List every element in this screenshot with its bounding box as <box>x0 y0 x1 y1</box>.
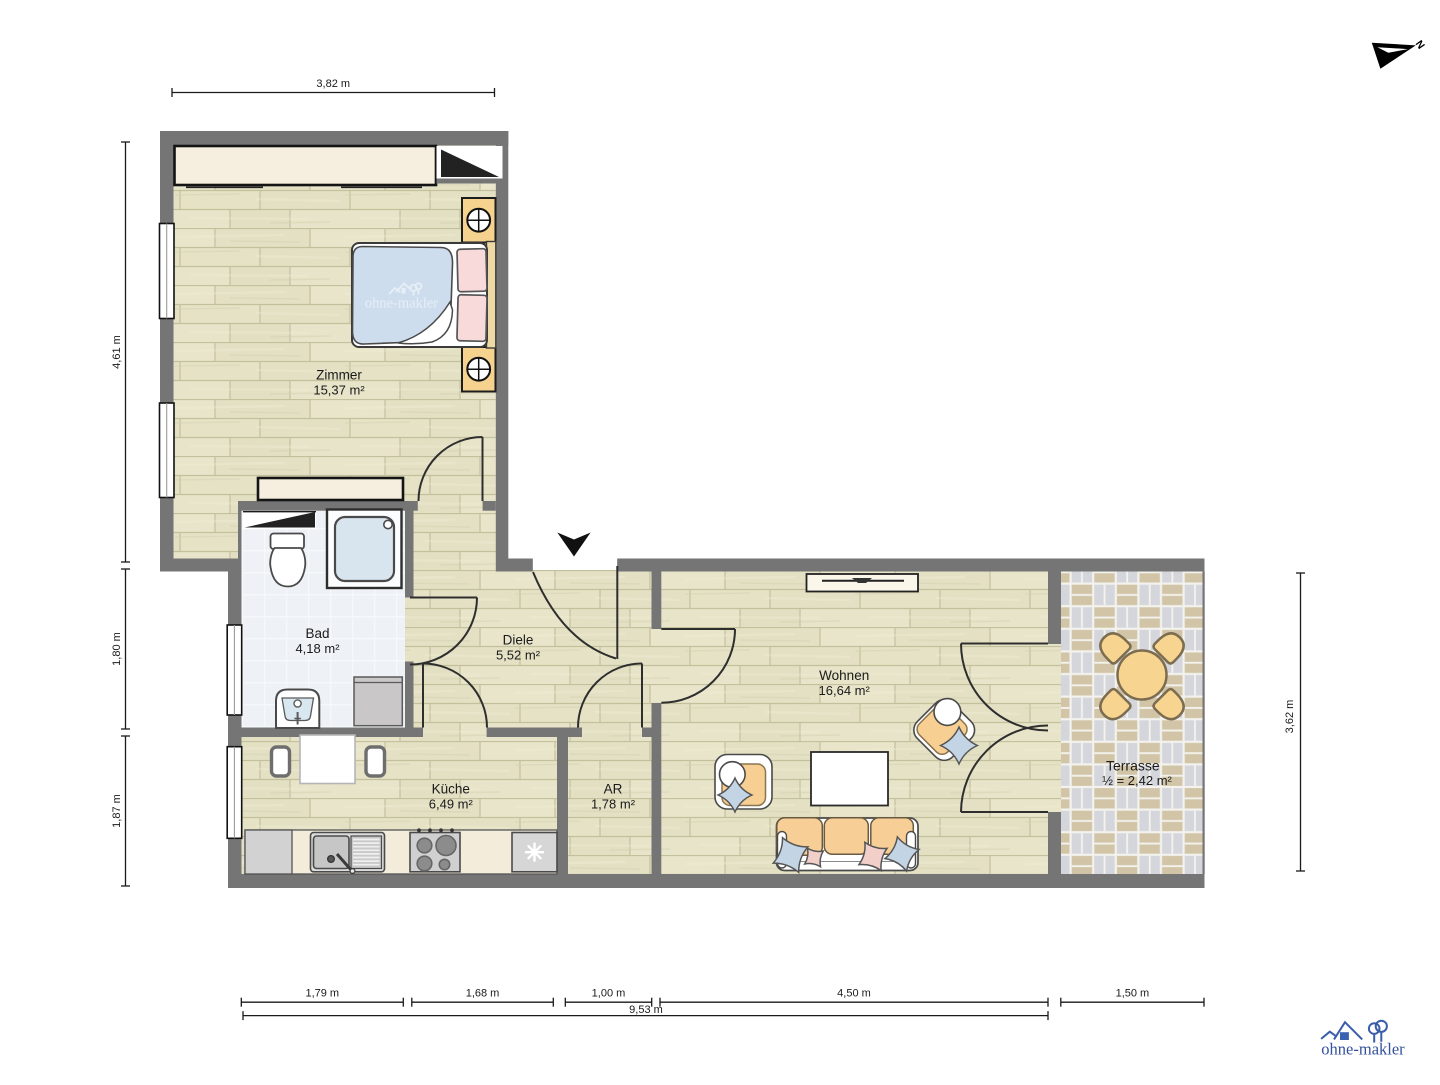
svg-text:1,87 m: 1,87 m <box>111 794 123 828</box>
svg-text:ohne-makler: ohne-makler <box>1321 1040 1405 1059</box>
svg-text:1,68 m: 1,68 m <box>466 988 500 1000</box>
svg-text:Terrasse: Terrasse <box>1106 758 1160 774</box>
svg-text:1,79 m: 1,79 m <box>305 988 339 1000</box>
svg-text:3,82 m: 3,82 m <box>316 78 350 90</box>
svg-text:Wohnen: Wohnen <box>819 668 869 683</box>
svg-text:6,49 m²: 6,49 m² <box>429 797 474 812</box>
svg-text:Küche: Küche <box>432 782 470 797</box>
svg-text:15,37 m²: 15,37 m² <box>313 383 365 398</box>
svg-text:1,80 m: 1,80 m <box>111 632 123 666</box>
svg-text:ohne-makler: ohne-makler <box>365 296 438 312</box>
svg-text:4,50 m: 4,50 m <box>837 988 871 1000</box>
svg-text:4,18 m²: 4,18 m² <box>295 641 340 656</box>
svg-text:1,78 m²: 1,78 m² <box>591 797 636 812</box>
svg-text:1,00 m: 1,00 m <box>592 988 626 1000</box>
svg-text:Bad: Bad <box>305 626 329 641</box>
svg-text:3,62 m: 3,62 m <box>1284 700 1296 734</box>
svg-text:Zimmer: Zimmer <box>316 368 362 383</box>
svg-text:Diele: Diele <box>503 633 534 648</box>
svg-text:4,61 m: 4,61 m <box>111 335 123 369</box>
svg-text:5,52 m²: 5,52 m² <box>496 648 541 663</box>
svg-text:1,50 m: 1,50 m <box>1116 988 1150 1000</box>
svg-text:AR: AR <box>604 782 623 797</box>
svg-text:½ = 2,42 m²: ½ = 2,42 m² <box>1102 773 1172 788</box>
svg-text:N: N <box>1413 38 1427 51</box>
svg-text:9,53 m: 9,53 m <box>629 1004 663 1016</box>
svg-text:16,64 m²: 16,64 m² <box>819 683 871 698</box>
